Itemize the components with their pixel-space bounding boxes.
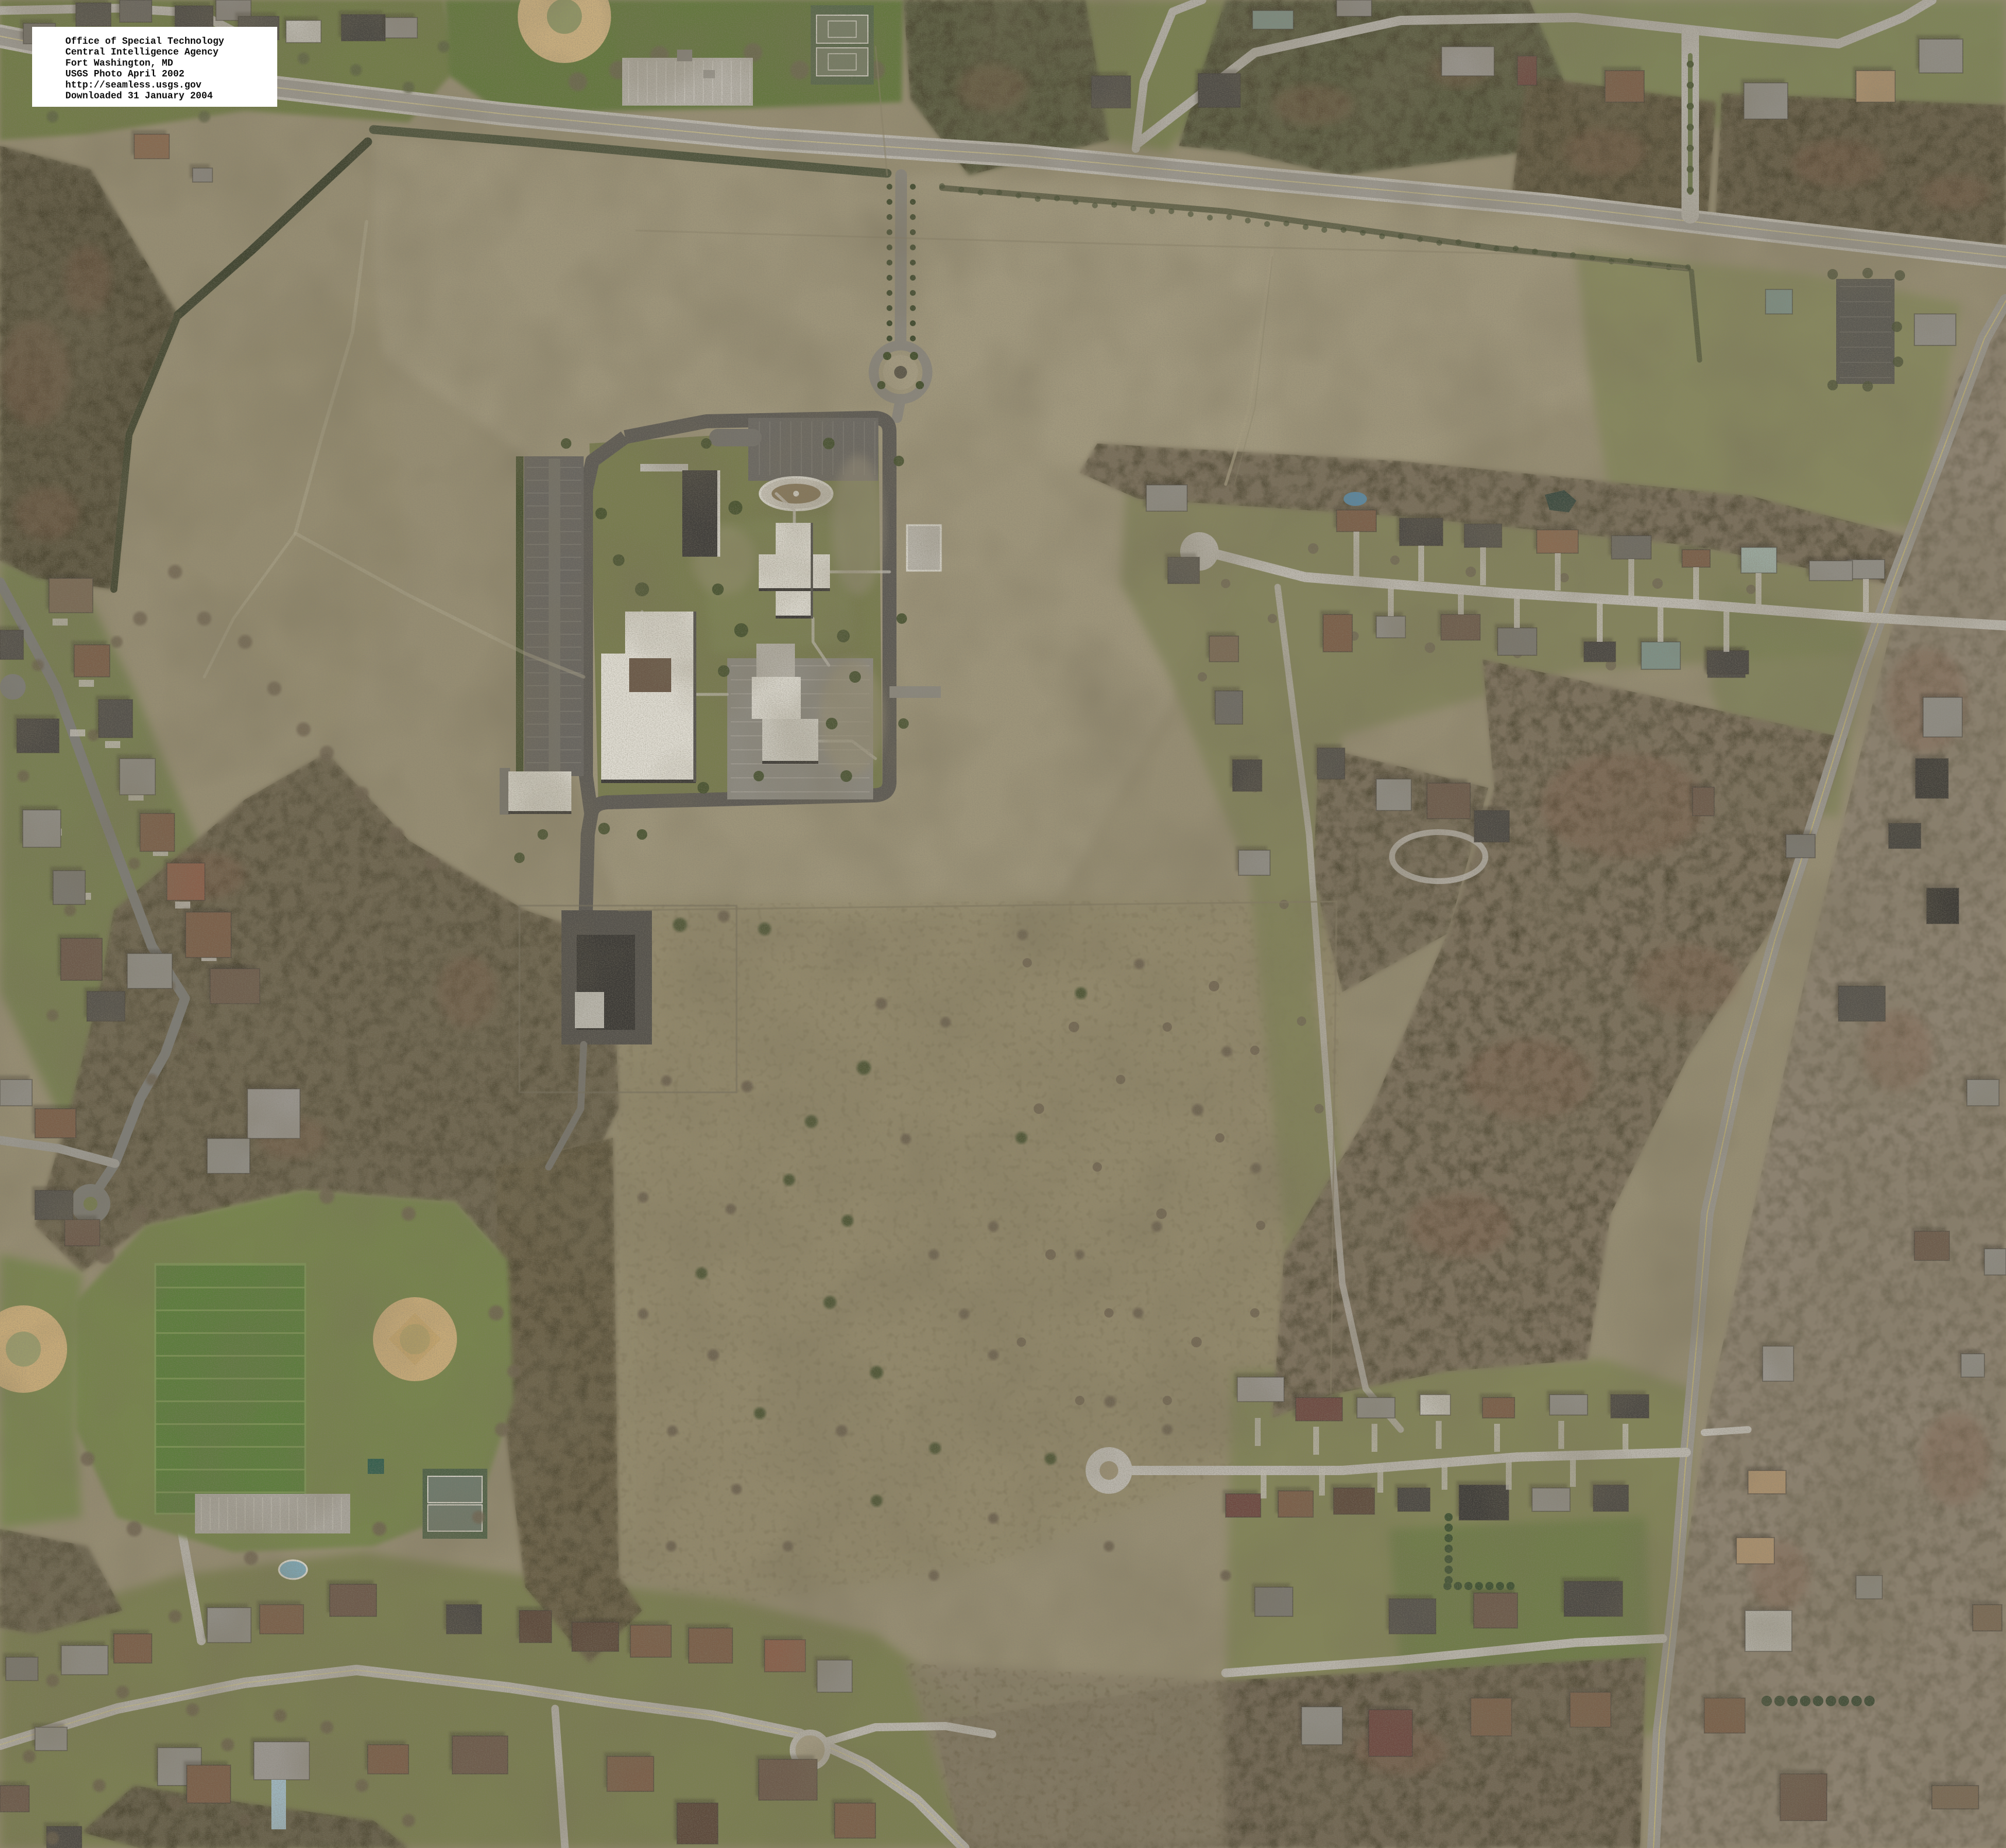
svg-text:USGS Photo April 2002: USGS Photo April 2002 [65, 69, 184, 79]
svg-text:Office of Special Technology: Office of Special Technology [65, 36, 224, 47]
svg-text:http://seamless.usgs.gov: http://seamless.usgs.gov [65, 80, 201, 90]
svg-text:Central Intelligence Agency: Central Intelligence Agency [65, 47, 219, 58]
svg-text:Fort Washington, MD: Fort Washington, MD [65, 58, 173, 68]
svg-text:Downloaded 31 January 2004: Downloaded 31 January 2004 [65, 91, 213, 102]
